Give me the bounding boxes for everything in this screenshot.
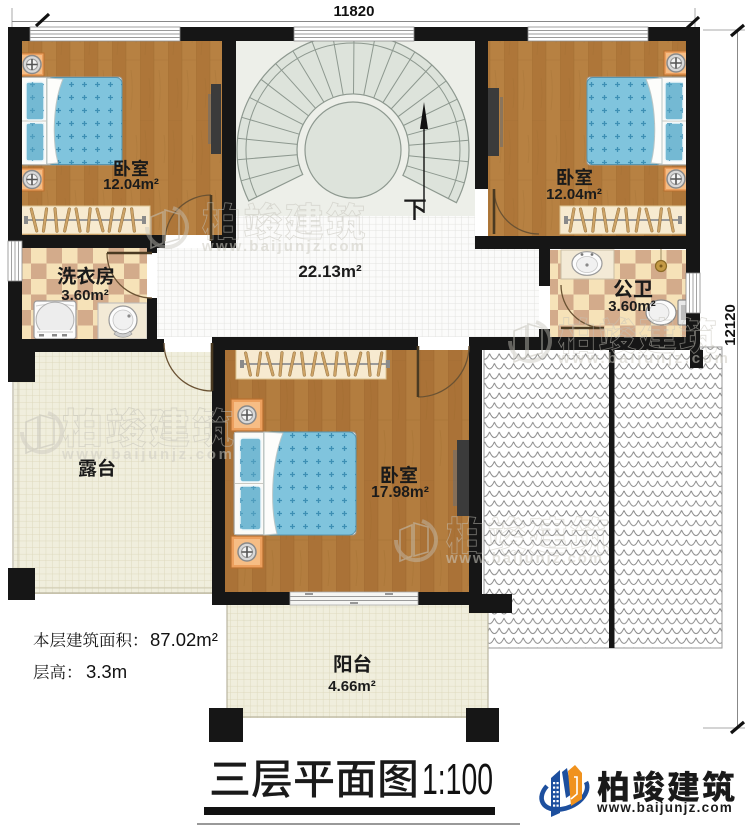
svg-text:www.baijunjz.com: www.baijunjz.com — [201, 238, 366, 255]
svg-text:4.66m²: 4.66m² — [328, 678, 376, 695]
svg-text:22.13m²: 22.13m² — [298, 262, 362, 281]
svg-text:3.60m²: 3.60m² — [608, 298, 656, 315]
svg-text:12.04m²: 12.04m² — [103, 176, 159, 193]
svg-text:www.baijunjz.com: www.baijunjz.com — [445, 550, 604, 567]
svg-text:www.baijunjz.com: www.baijunjz.com — [596, 800, 733, 815]
svg-text:87.02m²: 87.02m² — [150, 629, 218, 650]
svg-text:12.04m²: 12.04m² — [546, 186, 602, 203]
svg-text:12120: 12120 — [722, 304, 739, 346]
svg-text:1:100: 1:100 — [422, 755, 493, 804]
svg-text:11820: 11820 — [334, 3, 375, 20]
svg-text:www.baijunjz.com: www.baijunjz.com — [61, 446, 234, 463]
svg-text:17.98m²: 17.98m² — [371, 484, 429, 501]
svg-text:www.baijunjz.com: www.baijunjz.com — [557, 350, 730, 367]
svg-text:3.60m²: 3.60m² — [61, 287, 109, 304]
svg-text:3.3m: 3.3m — [86, 661, 127, 682]
